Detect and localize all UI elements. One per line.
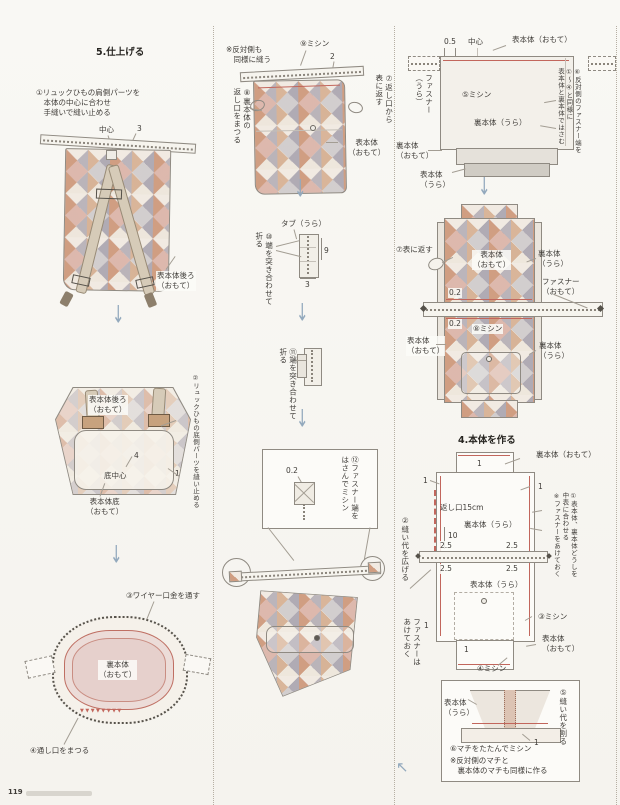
dim-1: 1	[423, 476, 428, 486]
zipper-teeth	[426, 309, 600, 311]
leader-line	[436, 344, 446, 345]
callout-line	[268, 527, 295, 561]
leader-line	[410, 569, 431, 588]
tab-piece	[299, 234, 319, 278]
strap-ring	[106, 150, 117, 160]
arrow-down-icon: ↓	[296, 408, 309, 432]
dim-1: 1	[424, 621, 429, 631]
stitch-line-top	[458, 455, 510, 456]
section4-heading: 4.本体を作る	[458, 432, 516, 446]
tab-label: タブ（うら）	[281, 219, 326, 229]
zipper-end-tab-right	[368, 562, 382, 574]
strap-slider-buckle	[96, 189, 122, 200]
leader-line	[64, 718, 79, 745]
leader-line	[326, 142, 338, 143]
dim-1: 1	[534, 738, 539, 748]
leader-line	[296, 360, 306, 361]
stitch-line	[472, 723, 548, 724]
dim-2-5: 2.5	[439, 564, 453, 574]
opening-dashed-edge	[434, 490, 436, 552]
arrow-down-icon: ↓	[112, 304, 125, 328]
dim-1: 1	[464, 645, 469, 655]
center-label: 中心	[468, 37, 483, 47]
step7-note: ⑦表に返す	[396, 245, 433, 255]
step9-note: ⑨ミシン	[300, 39, 329, 49]
instruction-page: 5.仕上げる ①リュックひもの肩側パーツを 本体の中心に合わせ 手縫いで縫い止め…	[0, 0, 620, 805]
zigzag-stitch-marks: ▼▼▼▼▼▼▼▼	[80, 708, 123, 714]
step5-note: ⑤ミシン	[462, 90, 491, 100]
stitch-line	[446, 299, 532, 300]
outer-back-label: 表本体（うら）	[470, 580, 523, 590]
tab-center-dotted-line	[307, 236, 309, 274]
zipper-strip-right	[588, 56, 616, 71]
zipper-teeth	[591, 63, 613, 65]
step10-note-vertical: ⑩端を突き合わせて 折る	[254, 232, 274, 332]
pocket-flap	[266, 626, 354, 653]
lining-back-label: 裏本体（うら）	[474, 118, 527, 128]
section5-heading: 5.仕上げる	[96, 44, 144, 58]
fastener-open-note-vertical: ファスナーは あけておく	[402, 618, 422, 692]
snap-dot	[310, 125, 316, 131]
step6-gusset-note: ⑥マチをたたんでミシン	[450, 744, 531, 754]
outer-body-label: 表本体 （おもて）	[472, 250, 511, 270]
arrow-down-icon: ↓	[478, 176, 491, 200]
dim-tick	[444, 48, 445, 56]
step7-note-vertical: ⑦返し口から 表に返す	[374, 74, 394, 184]
step6-note-vertical: ⑥反対側のファスナー端を ①～④と同様に 表本体と裏本体ではさむ	[556, 68, 581, 223]
dim-3: 3	[137, 124, 142, 134]
dim-10: 10	[448, 531, 458, 541]
snap-dot	[486, 356, 492, 362]
strap-tip-right	[144, 292, 158, 308]
back-body-label: 表本体後ろ （おもて）	[88, 395, 128, 415]
leader-line	[276, 250, 301, 257]
strap-anchor-right	[148, 414, 170, 427]
dim-2: 2	[330, 52, 335, 62]
step8-note-vertical: ⑧裏本体の 返し口をまつる	[232, 88, 252, 198]
step1-note-vertical: ①表本体、裏本体どうしを 中表に合わせる ※ファスナーをあけておく	[552, 492, 577, 602]
lining-back-label: 裏本体 （うら）	[539, 341, 569, 361]
back-body-label: 表本体後ろ （おもて）	[156, 271, 196, 291]
gusset-fold-band	[461, 728, 561, 743]
arrow-down-icon: ↓	[110, 544, 123, 568]
dim-0-2: 0.2	[448, 319, 462, 329]
stitch-line	[443, 60, 569, 61]
side-tab-left	[24, 655, 55, 678]
step8-note: ⑧ミシン	[472, 324, 503, 334]
leader-line	[428, 150, 442, 151]
zipper-end-tab-left	[229, 571, 243, 583]
step5-press-note-vertical: ⑤縫い代を割る	[558, 688, 568, 752]
outer-body-behind	[464, 163, 550, 177]
arrow-down-icon: ↓	[294, 178, 307, 202]
arrow-up-left-icon: ↖	[396, 760, 409, 775]
leader-line	[526, 644, 536, 647]
fastener-label-vertical: ファスナー （うら）	[414, 74, 434, 140]
step12-note-vertical: ⑫ファスナー端を はさんでミシン	[340, 456, 360, 526]
zipper-band	[419, 551, 548, 563]
detail-inset-box	[262, 449, 378, 529]
step3-note: ③ワイヤー口金を通す	[126, 591, 200, 601]
step2-note-vertical: ②縫い代を広げる	[400, 516, 410, 588]
zipper-teeth	[243, 71, 361, 79]
page-edge-divider	[616, 26, 617, 805]
dim-tick	[455, 48, 456, 56]
arrow-down-icon: ↓	[296, 302, 309, 326]
dim-bracket	[321, 238, 322, 260]
dim-4: 4	[134, 451, 139, 461]
dim-0-2: 0.2	[448, 288, 462, 298]
outer-body-label: 表本体 （おもて）	[406, 336, 445, 356]
step4-note: ④通し口をまつる	[30, 746, 89, 756]
lining-back-label: 裏本体 （うら）	[538, 249, 568, 269]
bottom-center-label: 底中心	[104, 471, 127, 481]
note-opposite-side: ※反対側も 同様に縫う	[226, 45, 271, 65]
lining-body-label: 裏本体 （おもて）	[98, 660, 137, 680]
zipper-teeth	[422, 557, 545, 559]
dim-0-5: 0.5	[444, 37, 456, 47]
dim-1: 1	[538, 482, 543, 492]
outer-body-label: 表本体 （おもて）	[348, 138, 385, 158]
leader-line	[294, 229, 298, 239]
dim-2-5: 2.5	[505, 541, 519, 551]
dim-1: 1	[477, 459, 482, 469]
fold-line	[300, 261, 316, 262]
dim-2-5: 2.5	[505, 564, 519, 574]
tab-fold-flap	[297, 354, 307, 378]
lining-front-label: 裏本体（おもて）	[536, 450, 596, 460]
dim-0-2: 0.2	[286, 466, 298, 476]
leader-line	[532, 510, 542, 513]
fastener-label: ファスナー （おもて）	[542, 277, 580, 297]
leader-line	[276, 240, 300, 247]
column-divider	[213, 26, 214, 805]
zipper-bar	[231, 565, 381, 582]
strap-anchor-left	[82, 416, 104, 429]
leader-line	[300, 50, 306, 65]
page-number: 119	[8, 788, 23, 797]
bottom-panel	[74, 430, 174, 490]
step3-note: ③ミシン	[538, 612, 567, 622]
step2-note-vertical: ②リュックひもの底側パーツを縫い止める	[191, 374, 199, 529]
step4-note: ④ミシン	[477, 664, 506, 674]
dim-3: 3	[305, 280, 310, 290]
dim-9: 9	[324, 246, 329, 256]
snap-dot	[481, 598, 487, 604]
outer-body-label: 表本体（おもて）	[512, 35, 572, 45]
zipper-teeth	[411, 63, 437, 65]
step11-note-vertical: ⑪端を突き合わせて 折る	[278, 348, 298, 443]
step1-note: ①リュックひもの肩側パーツを 本体の中心に合わせ 手縫いで縫い止める	[36, 88, 140, 117]
opening-label: 返し口15cm	[440, 503, 483, 513]
center-label: 中心	[99, 125, 114, 135]
leader-line	[493, 45, 506, 51]
dim-bracket	[300, 278, 316, 279]
zipper-teeth	[234, 569, 378, 579]
bottom-tab-patch	[461, 400, 518, 418]
thread-loop-right	[347, 100, 364, 115]
column-divider	[394, 26, 395, 805]
dim-2-5: 2.5	[439, 541, 453, 551]
lining-body-panel	[440, 56, 574, 150]
zipper-teeth-vertical	[303, 504, 305, 520]
bottom-body-label: 表本体底 （おもて）	[86, 497, 123, 517]
snap-dot	[314, 635, 320, 641]
fold-line	[300, 247, 316, 248]
lining-back-label: 裏本体（うら）	[464, 520, 517, 530]
callout-line	[364, 527, 371, 559]
strap-tip-left	[59, 291, 74, 308]
outer-front-label: 表本体 （おもて）	[542, 634, 579, 654]
outer-back-label: 表本体 （うら）	[420, 170, 450, 190]
tab-center-dotted-line	[311, 350, 313, 382]
zipper-strip-left	[408, 56, 440, 71]
gusset-opposite-note: ※反対側のマチと 裏本体のマチも同様に作る	[450, 756, 548, 776]
footer-caption-faint	[26, 791, 92, 796]
